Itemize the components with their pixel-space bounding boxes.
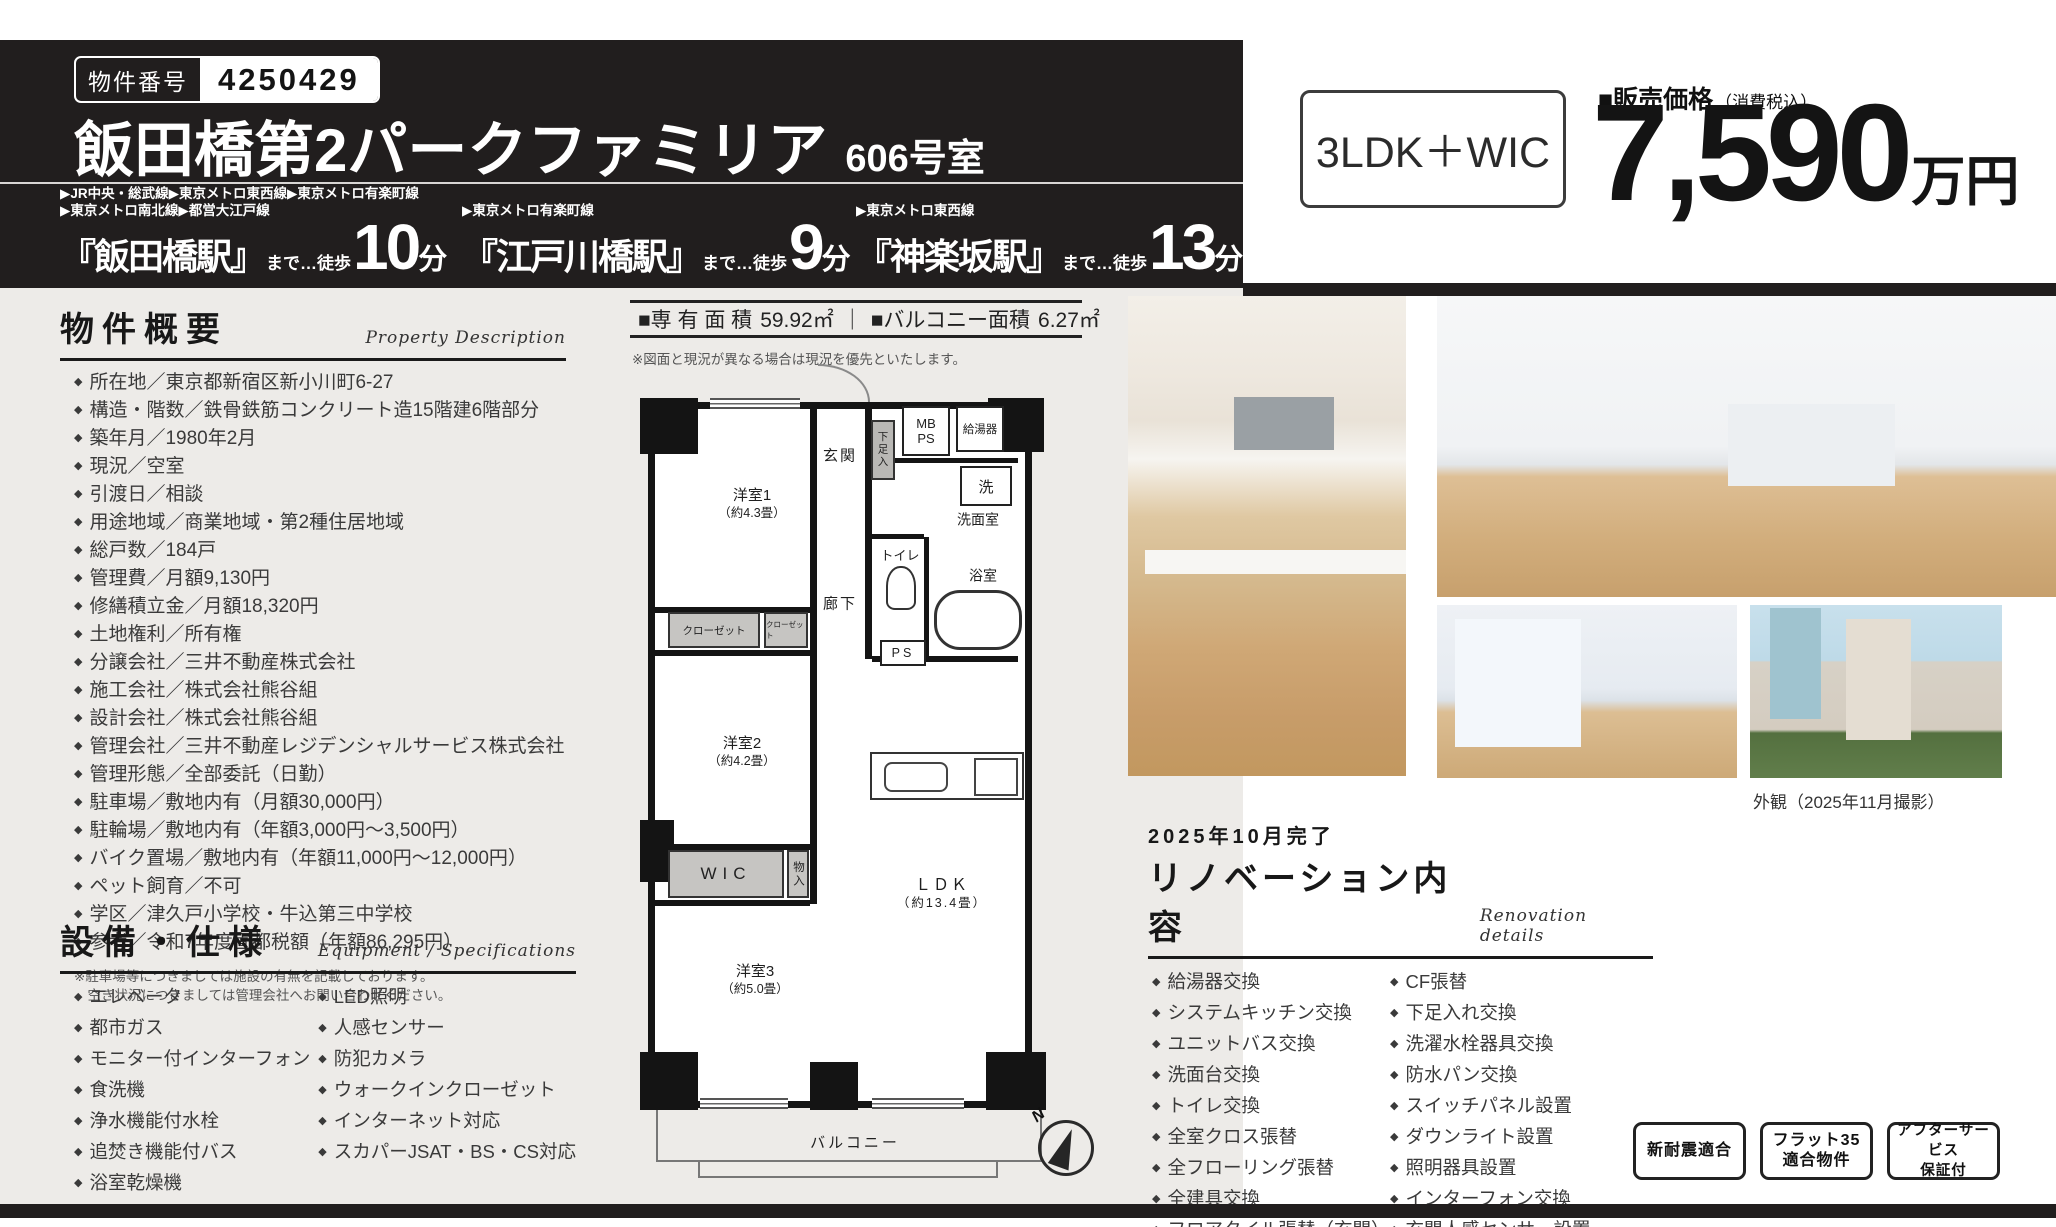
- renovation-item: スイッチパネル設置: [1390, 1092, 1653, 1123]
- equipment-item: 防犯カメラ: [318, 1045, 576, 1076]
- minutes-unit: 分: [418, 236, 447, 278]
- label-size: （約5.0畳）: [721, 982, 788, 998]
- overview-item: 管理会社／三井不動産レジデンシャルサービス株式会社: [74, 734, 566, 762]
- ps-label: PS: [917, 431, 934, 446]
- building-shape-secondary: [1770, 608, 1820, 719]
- balcony-label: バルコニー: [810, 1135, 900, 1154]
- overview-item: バイク置場／敷地内有（年額11,000円～12,000円）: [74, 846, 566, 874]
- room-label-bedroom2: 洋室2 （約4.2畳）: [708, 735, 775, 769]
- label-size: （約4.3畳）: [718, 506, 785, 522]
- ps-box: PS: [880, 640, 926, 666]
- station-walk-time: 『神楽坂駅』 まで…徒歩 13 分: [856, 220, 1243, 280]
- overview-item: 管理費／月額9,130円: [74, 566, 566, 594]
- closet-box: クローゼット: [764, 612, 808, 648]
- property-number-value: 4250429: [200, 58, 378, 101]
- overview-item: 構造・階数／鉄骨鉄筋コンクリート造15階建6階部分: [74, 398, 566, 426]
- station-iidabashi: ▶JR中央・総武線▶東京メトロ東西線▶東京メトロ有楽町線 ▶東京メトロ南北線▶都…: [60, 185, 447, 280]
- renovation-title: リノベーション内容: [1148, 851, 1480, 949]
- compass-needle: [1048, 1125, 1082, 1170]
- storage-box: 物入: [787, 850, 809, 898]
- property-number-badge: 物件番号 4250429: [74, 56, 380, 103]
- overview-item: 所在地／東京都新宿区新小川町6-27: [74, 370, 566, 398]
- renovation-item: 洗面台交換: [1152, 1061, 1390, 1092]
- wall: [655, 650, 810, 656]
- floor-plan-type-box: 3LDK＋WIC: [1300, 90, 1566, 208]
- overview-item: 分譲会社／三井不動産株式会社: [74, 650, 566, 678]
- station-lines: ▶JR中央・総武線▶東京メトロ東西線▶東京メトロ有楽町線: [60, 185, 447, 202]
- overview-item: ペット飼育／不可: [74, 874, 566, 902]
- room-label-bath: 浴室: [969, 567, 997, 585]
- header-bottom-strip: [1243, 283, 2056, 296]
- pillar: [986, 1052, 1046, 1110]
- overview-item: 管理形態／全部委託（日勤）: [74, 762, 566, 790]
- flyer-page: 物件番号 4250429 飯田橋第2パークファミリア 606号室 ▶JR中央・総…: [0, 0, 2056, 1227]
- overview-title: 物件概要: [60, 302, 228, 351]
- closet-label: クローゼット: [766, 619, 806, 641]
- overview-item: 設計会社／株式会社熊谷組: [74, 706, 566, 734]
- walk-label: まで…徒歩: [1062, 249, 1147, 274]
- renovation-item: ダウンライト設置: [1390, 1123, 1653, 1154]
- label-text: 洋室1: [733, 487, 771, 504]
- photo-bedroom: [1437, 605, 1737, 778]
- header: 物件番号 4250429 飯田橋第2パークファミリア 606号室 ▶JR中央・総…: [0, 40, 1243, 288]
- price: 7,590 万円: [1592, 84, 2019, 222]
- overview-item: 修繕積立金／月額18,320円: [74, 594, 566, 622]
- kitchen-counter-icon: [870, 752, 1024, 800]
- renovation-list-right: CF張替 下足入れ交換 洗濯水栓器具交換 防水パン交換 スイッチパネル設置 ダウ…: [1390, 968, 1653, 1227]
- compass-icon: N: [1038, 1120, 1094, 1176]
- label-text: 玄関: [823, 448, 857, 465]
- renovation-item: システムキッチン交換: [1152, 999, 1390, 1030]
- pillar: [640, 398, 698, 454]
- balcony-step: [698, 1160, 998, 1178]
- equipment-item: インターネット対応: [318, 1107, 576, 1138]
- equipment-item: LED照明: [318, 983, 576, 1014]
- stove-icon: [974, 758, 1018, 796]
- unit-number: 606号室: [845, 127, 984, 182]
- certification-badges: 新耐震適合 フラット35 適合物件 アフターサービス 保証付: [1633, 1122, 2000, 1180]
- photo-kitchen: [1128, 296, 1406, 776]
- equipment-item: 浴室乾燥機: [74, 1169, 318, 1200]
- station-name: 『飯田橋駅』: [60, 228, 264, 280]
- sink-icon: [884, 762, 948, 792]
- label-text: ＬＤＫ: [915, 877, 969, 894]
- mb-ps-box: MB PS: [902, 406, 950, 456]
- walk-minutes: 13: [1149, 220, 1214, 274]
- pillar: [810, 1062, 858, 1110]
- label-text: バルコニー: [810, 1135, 900, 1152]
- laundry-label: 洗: [978, 476, 993, 497]
- renovation-item: 洗濯水栓器具交換: [1390, 1030, 1653, 1061]
- overview-item: 現況／空室: [74, 454, 566, 482]
- room-label-corridor: 廊下: [823, 596, 857, 615]
- walk-minutes: 10: [353, 220, 418, 274]
- photo-living-dining: [1437, 296, 2056, 597]
- window: [872, 1098, 964, 1109]
- renovation-list-left: 給湯器交換 システムキッチン交換 ユニットバス交換 洗面台交換 トイレ交換 全室…: [1152, 968, 1390, 1227]
- floor-plan: クローゼット クローゼット WIC 物入 下足入 MB PS 給湯器 洗 PS: [640, 362, 1100, 1195]
- badge-line: 新耐震適合: [1647, 1141, 1732, 1161]
- closet-box: クローゼット: [668, 612, 760, 648]
- renovation-item: 防水パン交換: [1390, 1061, 1653, 1092]
- shoe-box-label: 下足入: [876, 431, 891, 469]
- overview-item: 引渡日／相談: [74, 482, 566, 510]
- renovation-item: CF張替: [1390, 968, 1653, 999]
- overview-item: 施工会社／株式会社熊谷組: [74, 678, 566, 706]
- badge-line: アフターサービス: [1890, 1121, 1997, 1161]
- storage-label: 物入: [790, 861, 806, 888]
- area-divider: ｜: [842, 304, 863, 334]
- label-text: 洋室2: [723, 735, 761, 752]
- equipment-title: 設備・仕様: [60, 915, 270, 964]
- kitchen-island-shape: [1728, 404, 1895, 485]
- label-text: 洗面室: [957, 511, 999, 527]
- station-name: 『神楽坂駅』: [856, 228, 1060, 280]
- balcony-area-value: 6.27㎡: [1038, 304, 1100, 334]
- renovation-columns: 給湯器交換 システムキッチン交換 ユニットバス交換 洗面台交換 トイレ交換 全室…: [1148, 959, 1653, 1227]
- overview-heading: 物件概要 Property Description: [60, 302, 566, 361]
- minutes-unit: 分: [822, 236, 851, 278]
- walk-label: まで…徒歩: [702, 249, 787, 274]
- photo-exterior: [1750, 605, 2002, 778]
- wic-box: WIC: [668, 850, 784, 898]
- property-overview-section: 物件概要 Property Description 所在地／東京都新宿区新小川町…: [60, 302, 566, 1005]
- equipment-subtitle-en: Equipment / Specifications: [318, 941, 576, 964]
- equipment-item: 都市ガス: [74, 1014, 318, 1045]
- overview-item: 総戸数／184戸: [74, 538, 566, 566]
- mb-label: MB: [916, 416, 936, 431]
- exterior-photo-caption: 外観（2025年11月撮影）: [1753, 788, 1944, 813]
- station-kagurazaka: ▶東京メトロ東西線 『神楽坂駅』 まで…徒歩 13 分: [856, 202, 1243, 280]
- badge-seismic: 新耐震適合: [1633, 1122, 1746, 1180]
- window: [700, 1098, 788, 1109]
- equipment-item: ウォークインクローゼット: [318, 1076, 576, 1107]
- pillar: [640, 1052, 698, 1110]
- toilet-icon: [886, 566, 916, 610]
- equipment-item: モニター付インターフォン: [74, 1045, 318, 1076]
- walk-label: まで…徒歩: [266, 249, 351, 274]
- station-access: ▶JR中央・総武線▶東京メトロ東西線▶東京メトロ有楽町線 ▶東京メトロ南北線▶都…: [0, 184, 1243, 288]
- overview-subtitle-en: Property Description: [365, 328, 566, 351]
- badge-line: 保証付: [1920, 1161, 1967, 1181]
- closet-label: クローゼット: [683, 623, 746, 638]
- renovation-section: 2025年10月完了 リノベーション内容 Renovation details …: [1148, 820, 1653, 1227]
- equipment-list-left: エレベータ 都市ガス モニター付インターフォン 食洗機 浄水機能付水栓 追焚き機…: [74, 983, 318, 1200]
- overview-item: 用途地域／商業地域・第2種住居地域: [74, 510, 566, 538]
- renovation-item: 下足入れ交換: [1390, 999, 1653, 1030]
- wall: [655, 900, 810, 906]
- badge-line: 適合物件: [1782, 1151, 1850, 1171]
- station-walk-time: 『江戸川橋駅』 まで…徒歩 9 分: [462, 220, 851, 280]
- overview-item: 駐輪場／敷地内有（年額3,000円～3,500円）: [74, 818, 566, 846]
- water-heater-label: 給湯器: [963, 421, 998, 437]
- label-size: （約4.2畳）: [708, 754, 775, 770]
- label-text: 廊下: [823, 596, 857, 613]
- station-edogawabashi: ▶東京メトロ有楽町線 『江戸川橋駅』 まで…徒歩 9 分: [462, 202, 851, 280]
- badge-after-service: アフターサービス 保証付: [1887, 1122, 2000, 1180]
- renovation-item: 給湯器交換: [1152, 968, 1390, 999]
- equipment-item: エレベータ: [74, 983, 318, 1014]
- area-bar: ■専 有 面 積 59.92㎡ ｜ ■バルコニー面積 6.27㎡: [630, 300, 1082, 338]
- building-shape: [1846, 619, 1912, 740]
- wall: [810, 409, 817, 904]
- overview-list: 所在地／東京都新宿区新小川町6-27 構造・階数／鉄骨鉄筋コンクリート造15階建…: [60, 370, 566, 958]
- equipment-item: 食洗機: [74, 1076, 318, 1107]
- renovation-item: 照明器具設置: [1390, 1154, 1653, 1185]
- station-walk-time: 『飯田橋駅』 まで…徒歩 10 分: [60, 220, 447, 280]
- window-shape: [1455, 619, 1581, 747]
- building-title: 飯田橋第2パークファミリア: [74, 102, 827, 189]
- equipment-item: 人感センサー: [318, 1014, 576, 1045]
- overview-item: 土地権利／所有権: [74, 622, 566, 650]
- counter-shape: [1145, 550, 1406, 574]
- wall: [924, 537, 929, 656]
- label-text: 浴室: [969, 567, 997, 583]
- label-text: トイレ: [880, 548, 919, 563]
- window: [710, 398, 800, 409]
- renovation-subtitle-en: Renovation details: [1480, 906, 1653, 949]
- wall: [872, 534, 924, 539]
- plan-type: 3LDK＋WIC: [1316, 118, 1550, 180]
- overview-item: 築年月／1980年2月: [74, 426, 566, 454]
- label-size: （約13.4畳）: [897, 896, 987, 912]
- equipment-heading: 設備・仕様 Equipment / Specifications: [60, 915, 576, 974]
- exclusive-area-label: ■専 有 面 積: [638, 304, 752, 334]
- walk-minutes: 9: [789, 220, 822, 274]
- entrance-door-arc: [818, 364, 870, 402]
- equipment-columns: エレベータ 都市ガス モニター付インターフォン 食洗機 浄水機能付水栓 追焚き機…: [60, 974, 576, 1200]
- label-text: 洋室3: [736, 963, 774, 980]
- laundry-box: 洗: [960, 466, 1012, 506]
- renovation-completed-date: 2025年10月完了: [1148, 820, 1653, 849]
- bathtub-icon: [934, 590, 1022, 650]
- station-name: 『江戸川橋駅』: [462, 228, 700, 280]
- title-row: 飯田橋第2パークファミリア 606号室: [74, 102, 985, 189]
- ps-label: PS: [892, 646, 915, 660]
- property-number-label: 物件番号: [76, 58, 200, 101]
- equipment-item: スカパーJSAT・BS・CS対応: [318, 1138, 576, 1169]
- equipment-item: 浄水機能付水栓: [74, 1107, 318, 1138]
- badge-line: フラット35: [1773, 1131, 1861, 1151]
- room-label-bedroom1: 洋室1 （約4.3畳）: [718, 487, 785, 521]
- exclusive-area-value: 59.92㎡: [760, 304, 834, 334]
- room-label-ldk: ＬＤＫ （約13.4畳）: [897, 876, 987, 912]
- price-unit: 万円: [1911, 137, 2019, 216]
- footer-bar: [0, 1204, 2056, 1218]
- price-amount: 7,590: [1592, 84, 1907, 222]
- equipment-section: 設備・仕様 Equipment / Specifications エレベータ 都…: [60, 915, 576, 1200]
- renovation-item: ユニットバス交換: [1152, 1030, 1390, 1061]
- range-hood-shape: [1234, 397, 1334, 450]
- renovation-item: 全フローリング張替: [1152, 1154, 1390, 1185]
- water-heater-box: 給湯器: [956, 406, 1004, 452]
- renovation-item: 全室クロス張替: [1152, 1123, 1390, 1154]
- renovation-heading: リノベーション内容 Renovation details: [1148, 851, 1653, 959]
- room-label-toilet: トイレ: [880, 548, 919, 564]
- room-label-bedroom3: 洋室3 （約5.0畳）: [721, 963, 788, 997]
- room-label-genkan: 玄関: [823, 448, 857, 467]
- wic-label: WIC: [700, 864, 751, 884]
- badge-flat35: フラット35 適合物件: [1760, 1122, 1873, 1180]
- equipment-list-right: LED照明 人感センサー 防犯カメラ ウォークインクローゼット インターネット対…: [318, 983, 576, 1200]
- minutes-unit: 分: [1214, 236, 1243, 278]
- room-label-washroom: 洗面室: [957, 511, 999, 529]
- overview-item: 駐車場／敷地内有（月額30,000円）: [74, 790, 566, 818]
- equipment-item: 追焚き機能付バス: [74, 1138, 318, 1169]
- renovation-item: トイレ交換: [1152, 1092, 1390, 1123]
- shoe-box: 下足入: [871, 420, 895, 480]
- balcony-area-label: ■バルコニー面積: [871, 304, 1030, 334]
